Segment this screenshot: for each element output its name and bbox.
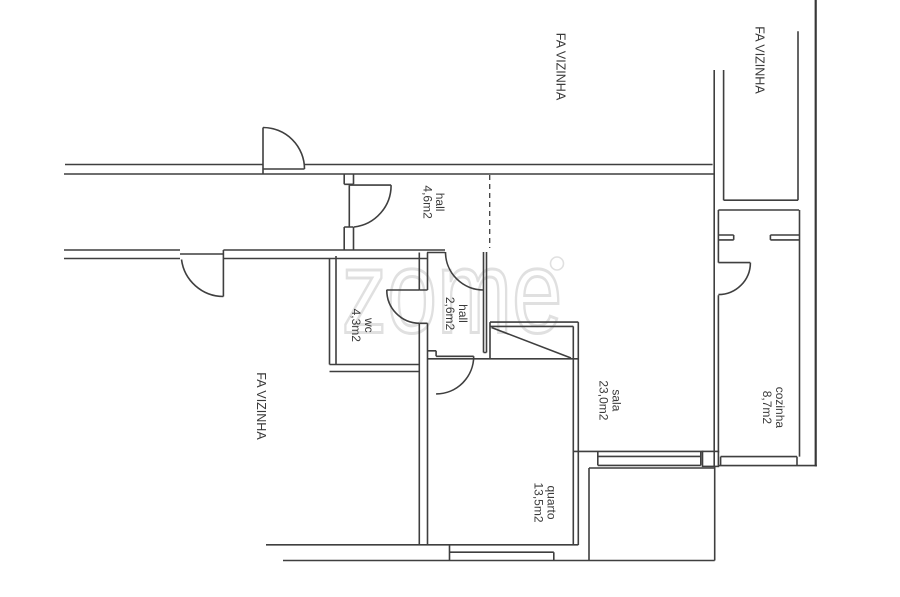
- svg-text:4,6m2: 4,6m2: [420, 185, 434, 219]
- svg-text:zome: zome: [342, 227, 562, 358]
- svg-text:FA VIZINHA: FA VIZINHA: [554, 33, 568, 101]
- svg-text:13,5m2: 13,5m2: [532, 482, 546, 522]
- svg-text:8,7m2: 8,7m2: [760, 391, 774, 425]
- svg-text:2,6m2: 2,6m2: [443, 297, 457, 331]
- svg-text:4,3m2: 4,3m2: [349, 309, 363, 343]
- svg-text:23,0m2: 23,0m2: [597, 380, 611, 420]
- svg-text:FA VIZINHA: FA VIZINHA: [254, 372, 268, 440]
- svg-text:FA VIZINHA: FA VIZINHA: [753, 26, 767, 94]
